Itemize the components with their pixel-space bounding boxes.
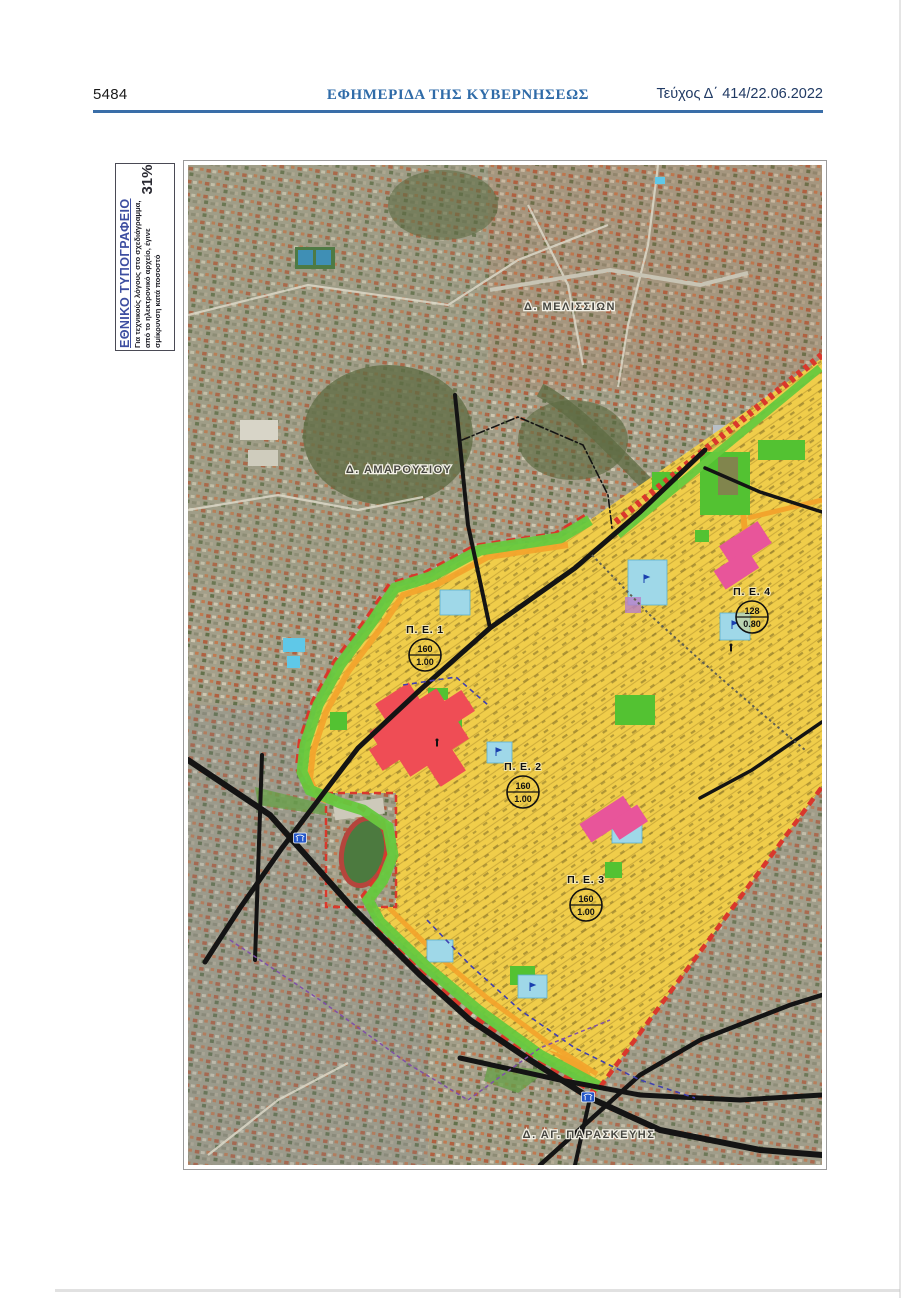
- header-rule: [93, 110, 823, 113]
- svg-text:0.80: 0.80: [743, 619, 761, 629]
- scan-artifact: [55, 1289, 900, 1292]
- label-ag-paraskevis: Δ. ΑΓ. ΠΑΡΑΣΚΕΥΗΣ: [523, 1129, 656, 1141]
- svg-text:160: 160: [578, 894, 593, 904]
- planning-unit-1: Π. Ε. 1 160 1.00: [406, 624, 444, 671]
- svg-text:1.00: 1.00: [514, 794, 532, 804]
- planning-unit-2: Π. Ε. 2 160 1.00: [504, 761, 542, 808]
- grove: [303, 365, 473, 505]
- label-amarousiou: Δ. ΑΜΑΡΟΥΣΙΟΥ: [346, 464, 452, 476]
- label-melission: Δ. ΜΕΛΙΣΣΙΩΝ: [524, 301, 616, 313]
- svg-text:Π. Ε. 4: Π. Ε. 4: [733, 586, 771, 598]
- svg-text:Π. Ε. 3: Π. Ε. 3: [567, 874, 605, 886]
- gazette-page: 5484 ΕΦΗΜΕΡΙΔΑ ΤΗΣ ΚΥΒΕΡΝΗΣΕΩΣ Τεύχος Δ΄…: [0, 0, 918, 1298]
- svg-text:Π. Ε. 1: Π. Ε. 1: [406, 624, 444, 636]
- printing-office-title: ΕΘΝΙΚΟ ΤΥΠΟΓΡΑΦΕΙΟ: [118, 166, 132, 348]
- svg-text:1.00: 1.00: [577, 907, 595, 917]
- swimming-pool: [283, 638, 305, 652]
- issue-label: Τεύχος Δ΄ 414/22.06.2022: [657, 86, 824, 102]
- reduction-percentage: 31%: [139, 165, 156, 195]
- svg-text:128: 128: [744, 606, 759, 616]
- page-header: 5484 ΕΦΗΜΕΡΙΔΑ ΤΗΣ ΚΥΒΕΡΝΗΣΕΩΣ Τεύχος Δ΄…: [93, 86, 823, 108]
- planning-unit-3: Π. Ε. 3 160 1.00: [567, 874, 605, 921]
- svg-text:Π. Ε. 2: Π. Ε. 2: [504, 761, 542, 773]
- zoning-map-canvas: Δ. ΜΕΛΙΣΣΙΩΝ Δ. ΑΜΑΡΟΥΣΙΟΥ Δ. ΑΓ. ΠΑΡΑΣΚ…: [188, 165, 822, 1165]
- zoning-map: Δ. ΜΕΛΙΣΣΙΩΝ Δ. ΑΜΑΡΟΥΣΙΟΥ Δ. ΑΓ. ΠΑΡΑΣΚ…: [183, 160, 827, 1170]
- svg-text:1.00: 1.00: [416, 657, 434, 667]
- printing-note-text: Για τεχνικούς λόγους στο σχεδιάγραμμα, α…: [133, 201, 163, 348]
- planning-unit-4: Π. Ε. 4 128 0.80: [733, 586, 771, 633]
- svg-text:160: 160: [417, 644, 432, 654]
- printing-office-note: ΕΘΝΙΚΟ ΤΥΠΟΓΡΑΦΕΙΟ Για τεχνικούς λόγους …: [115, 163, 175, 351]
- scan-artifact: [899, 0, 901, 1298]
- svg-text:160: 160: [515, 781, 530, 791]
